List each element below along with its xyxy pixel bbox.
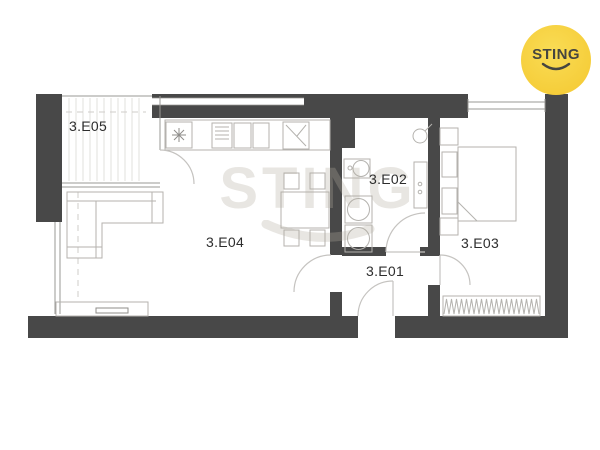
nightstand — [440, 218, 458, 235]
hob-burner-icon — [172, 128, 186, 142]
sink-icon — [234, 123, 269, 148]
bathroom-shelf — [414, 162, 427, 208]
kitchen-counter — [165, 120, 330, 150]
chair — [284, 173, 299, 189]
tv-cabinet — [56, 302, 148, 316]
wall-segment — [330, 292, 342, 316]
doors — [160, 150, 470, 316]
wall-segment — [28, 316, 358, 338]
dishwasher-icon — [212, 123, 232, 148]
bed — [458, 147, 516, 221]
dashed-projection-lines — [66, 112, 146, 300]
dining-table — [281, 192, 329, 228]
bathroom-fixtures — [344, 124, 432, 252]
sting-logo-text: STING — [532, 47, 580, 62]
nightstand — [440, 128, 458, 145]
washbasin-icon — [344, 159, 370, 178]
chair — [284, 230, 299, 246]
room-label-3e04: 3.E04 — [206, 234, 244, 250]
kitchen-window-slit — [152, 98, 304, 105]
wall-segment — [545, 94, 568, 338]
wardrobe-hatch — [444, 299, 539, 314]
wall-segment — [395, 316, 568, 338]
wall-segment — [36, 94, 62, 222]
sofa — [67, 192, 163, 258]
door-arc-balcony — [160, 150, 194, 184]
tv — [96, 308, 128, 313]
wall-segment — [428, 118, 440, 255]
room-label-3e05: 3.E05 — [69, 118, 107, 134]
bedroom-window — [468, 99, 545, 112]
dining-set — [281, 173, 329, 246]
west-window — [55, 222, 60, 314]
door-arc-living-hall — [294, 255, 331, 292]
chair — [310, 230, 325, 246]
bedroom-furniture — [440, 128, 540, 316]
room-label-3e02: 3.E02 — [369, 171, 407, 187]
pillow — [442, 152, 457, 177]
pillow — [442, 188, 457, 214]
door-arc-entrance — [358, 281, 393, 316]
fridge-icon — [283, 122, 309, 149]
wall-segment — [428, 285, 440, 316]
floor-plan-drawing — [0, 0, 600, 450]
wall-segment — [338, 118, 355, 148]
window-slit — [152, 98, 304, 105]
chair — [310, 173, 325, 189]
door-arc-bathroom — [386, 213, 425, 252]
wardrobe — [443, 296, 540, 316]
floor-plan-page: STING 3.E05 3.E04 3.E02 3.E01 3.E03 STIN… — [0, 0, 600, 450]
washing-machine-icon — [345, 196, 372, 223]
blanket-fold — [458, 202, 477, 221]
sting-logo: STING — [521, 25, 591, 95]
sting-logo-smile-icon — [539, 62, 573, 74]
room-label-3e01: 3.E01 — [366, 263, 404, 279]
balcony-hatch — [69, 98, 139, 181]
door-arc-bedroom — [440, 255, 470, 285]
room-label-3e03: 3.E03 — [461, 235, 499, 251]
